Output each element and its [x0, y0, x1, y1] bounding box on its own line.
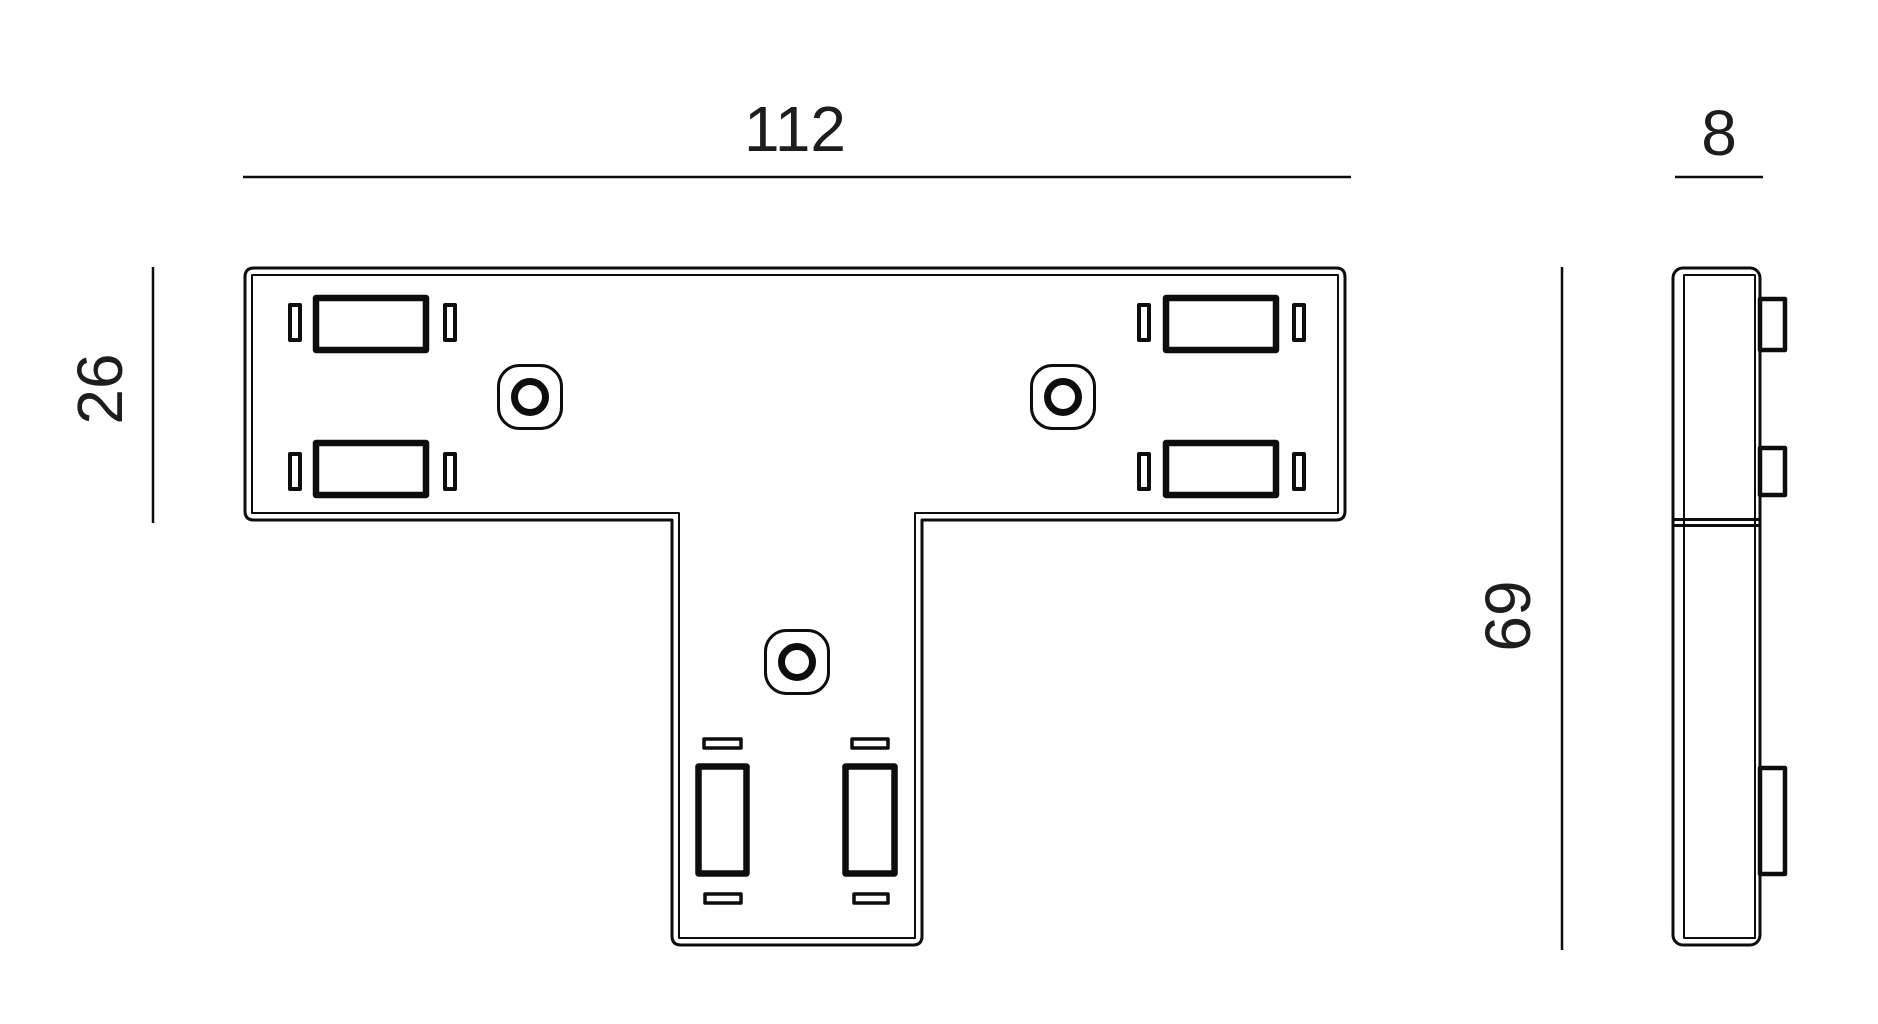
dim-depth-label: 8 — [1701, 97, 1737, 169]
drawing-page: 112 8 26 69 — [0, 0, 1878, 1024]
dim-bar-height-label: 26 — [64, 353, 136, 424]
dim-width-label: 112 — [744, 93, 846, 165]
technical-drawing-canvas: 112 8 26 69 — [0, 0, 1878, 1024]
dim-total-height-label: 69 — [1472, 580, 1544, 651]
